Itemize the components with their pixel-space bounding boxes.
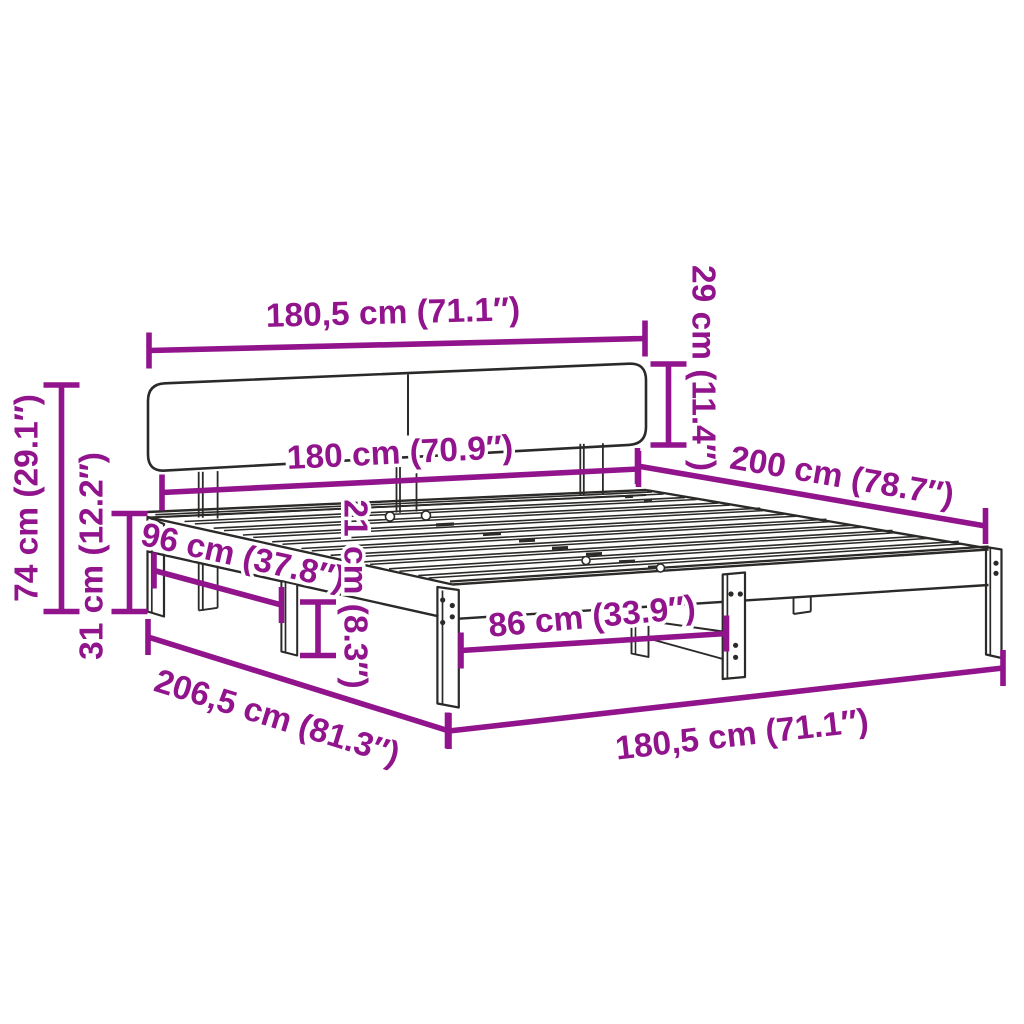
svg-text:180,5 cm (71.1″): 180,5 cm (71.1″): [265, 291, 520, 335]
svg-text:29 cm (11.4″): 29 cm (11.4″): [685, 265, 722, 471]
svg-text:21 cm (8.3″): 21 cm (8.3″): [337, 499, 374, 688]
svg-text:31 cm (12.2″): 31 cm (12.2″): [74, 452, 111, 660]
svg-text:74 cm (29.1″): 74 cm (29.1″): [9, 394, 46, 602]
